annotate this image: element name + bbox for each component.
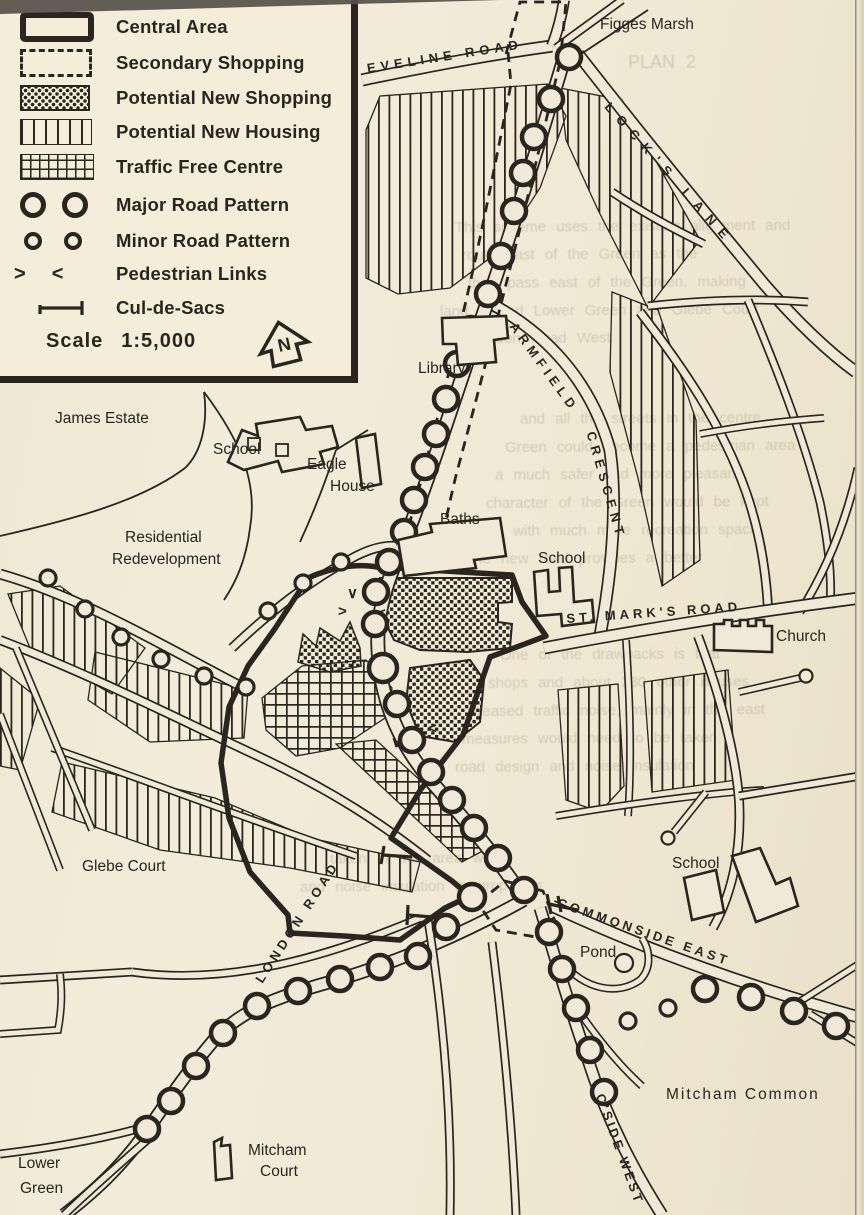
- label-school-se: School: [672, 855, 719, 872]
- legend-item-label: Cul-de-Sacs: [116, 297, 225, 319]
- label-lower-green-2: Green: [20, 1180, 63, 1197]
- scale-text: Scale1:5,000: [46, 330, 196, 353]
- potential-new-shopping-swatch: [20, 85, 90, 111]
- label-church: Church: [776, 628, 826, 645]
- cul-de-sac-icon: [36, 298, 92, 318]
- legend-item-minor-road-pattern: Minor Road Pattern: [0, 224, 351, 258]
- legend-item-label: Pedestrian Links: [116, 263, 267, 285]
- legend-item-label: Secondary Shopping: [116, 52, 305, 74]
- minor-road-circle-icon: [24, 232, 42, 250]
- legend-item-secondary-shopping: Secondary Shopping: [0, 46, 351, 80]
- traffic-free-centre-swatch: [20, 154, 94, 180]
- label-figges-marsh: Figges Marsh: [600, 16, 694, 33]
- north-arrow: N: [248, 318, 318, 375]
- scale-value: 1:5,000: [121, 330, 196, 352]
- label-mitcham-common: Mitcham Common: [666, 1086, 820, 1103]
- legend-item-pedestrian-links: > < Pedestrian Links: [0, 257, 351, 291]
- label-school-nw: School: [213, 441, 260, 458]
- legend-item-label: Central Area: [116, 16, 228, 38]
- label-pond: Pond: [580, 944, 616, 961]
- legend-item-label: Minor Road Pattern: [116, 230, 290, 252]
- legend-item-potential-new-housing: Potential New Housing: [0, 115, 351, 149]
- label-mitcham-court-1: Mitcham: [248, 1142, 307, 1159]
- legend-panel: Central Area Secondary Shopping Potentia…: [0, 0, 358, 383]
- pedestrian-link-icon: >: [14, 263, 26, 286]
- pedestrian-link-icon: ∨: [347, 584, 358, 602]
- potential-new-housing-swatch: [20, 119, 92, 145]
- legend-item-label: Major Road Pattern: [116, 194, 289, 216]
- major-road-circle-icon: [20, 192, 46, 218]
- label-st-marks-road: ST. MARK'S ROAD: [566, 600, 742, 626]
- label-baths: Baths: [440, 511, 480, 528]
- label-eveline-road: EVELINE ROAD: [366, 37, 524, 76]
- pedestrian-link-icon: <: [52, 263, 64, 286]
- pedestrian-link-icon: <: [428, 720, 437, 737]
- minor-road-circle-icon: [64, 232, 82, 250]
- label-london-road: LONDON ROAD: [253, 859, 342, 986]
- legend-item-central-area: Central Area: [0, 10, 351, 44]
- label-armfield: ARMFIELD: [506, 320, 581, 415]
- label-james-estate: James Estate: [55, 410, 149, 427]
- legend-item-potential-new-shopping: Potential New Shopping: [0, 81, 351, 115]
- label-school-central: School: [538, 550, 585, 567]
- label-mitcham-court-2: Court: [260, 1163, 298, 1180]
- legend-item-label: Potential New Housing: [116, 121, 321, 143]
- page-edge: [851, 0, 864, 1215]
- label-cside-west: C'SIDE WEST: [593, 1092, 646, 1207]
- legend-item-label: Traffic Free Centre: [116, 156, 283, 178]
- label-library: Library: [418, 360, 465, 377]
- label-eagle-house-2: House: [330, 478, 375, 495]
- pedestrian-link-icon: ∨: [391, 733, 402, 751]
- label-lower-green-1: Lower: [18, 1155, 60, 1172]
- label-glebe-court: Glebe Court: [82, 858, 166, 875]
- label-residential-2: Redevelopment: [112, 551, 221, 568]
- legend-item-label: Potential New Shopping: [116, 87, 332, 109]
- central-area-swatch: [20, 12, 94, 42]
- scale-label: Scale: [46, 330, 103, 352]
- pedestrian-link-icon: >: [338, 603, 347, 620]
- legend-item-major-road-pattern: Major Road Pattern: [0, 188, 351, 222]
- major-road-circle-icon: [62, 192, 88, 218]
- label-residential-1: Residential: [125, 529, 202, 546]
- label-locks-lane: LOCK'S LANE: [601, 100, 736, 248]
- pedestrian-link-icon: <: [377, 605, 386, 622]
- north-letter: N: [276, 334, 293, 356]
- secondary-shopping-swatch: [20, 49, 92, 77]
- label-eagle-house-1: Eagle: [307, 456, 347, 473]
- legend-item-traffic-free-centre: Traffic Free Centre: [0, 150, 351, 184]
- label-crescent: CRESCENT: [583, 430, 627, 541]
- plan-map-page: PLAN 2This scheme uses the existing alig…: [0, 0, 864, 1215]
